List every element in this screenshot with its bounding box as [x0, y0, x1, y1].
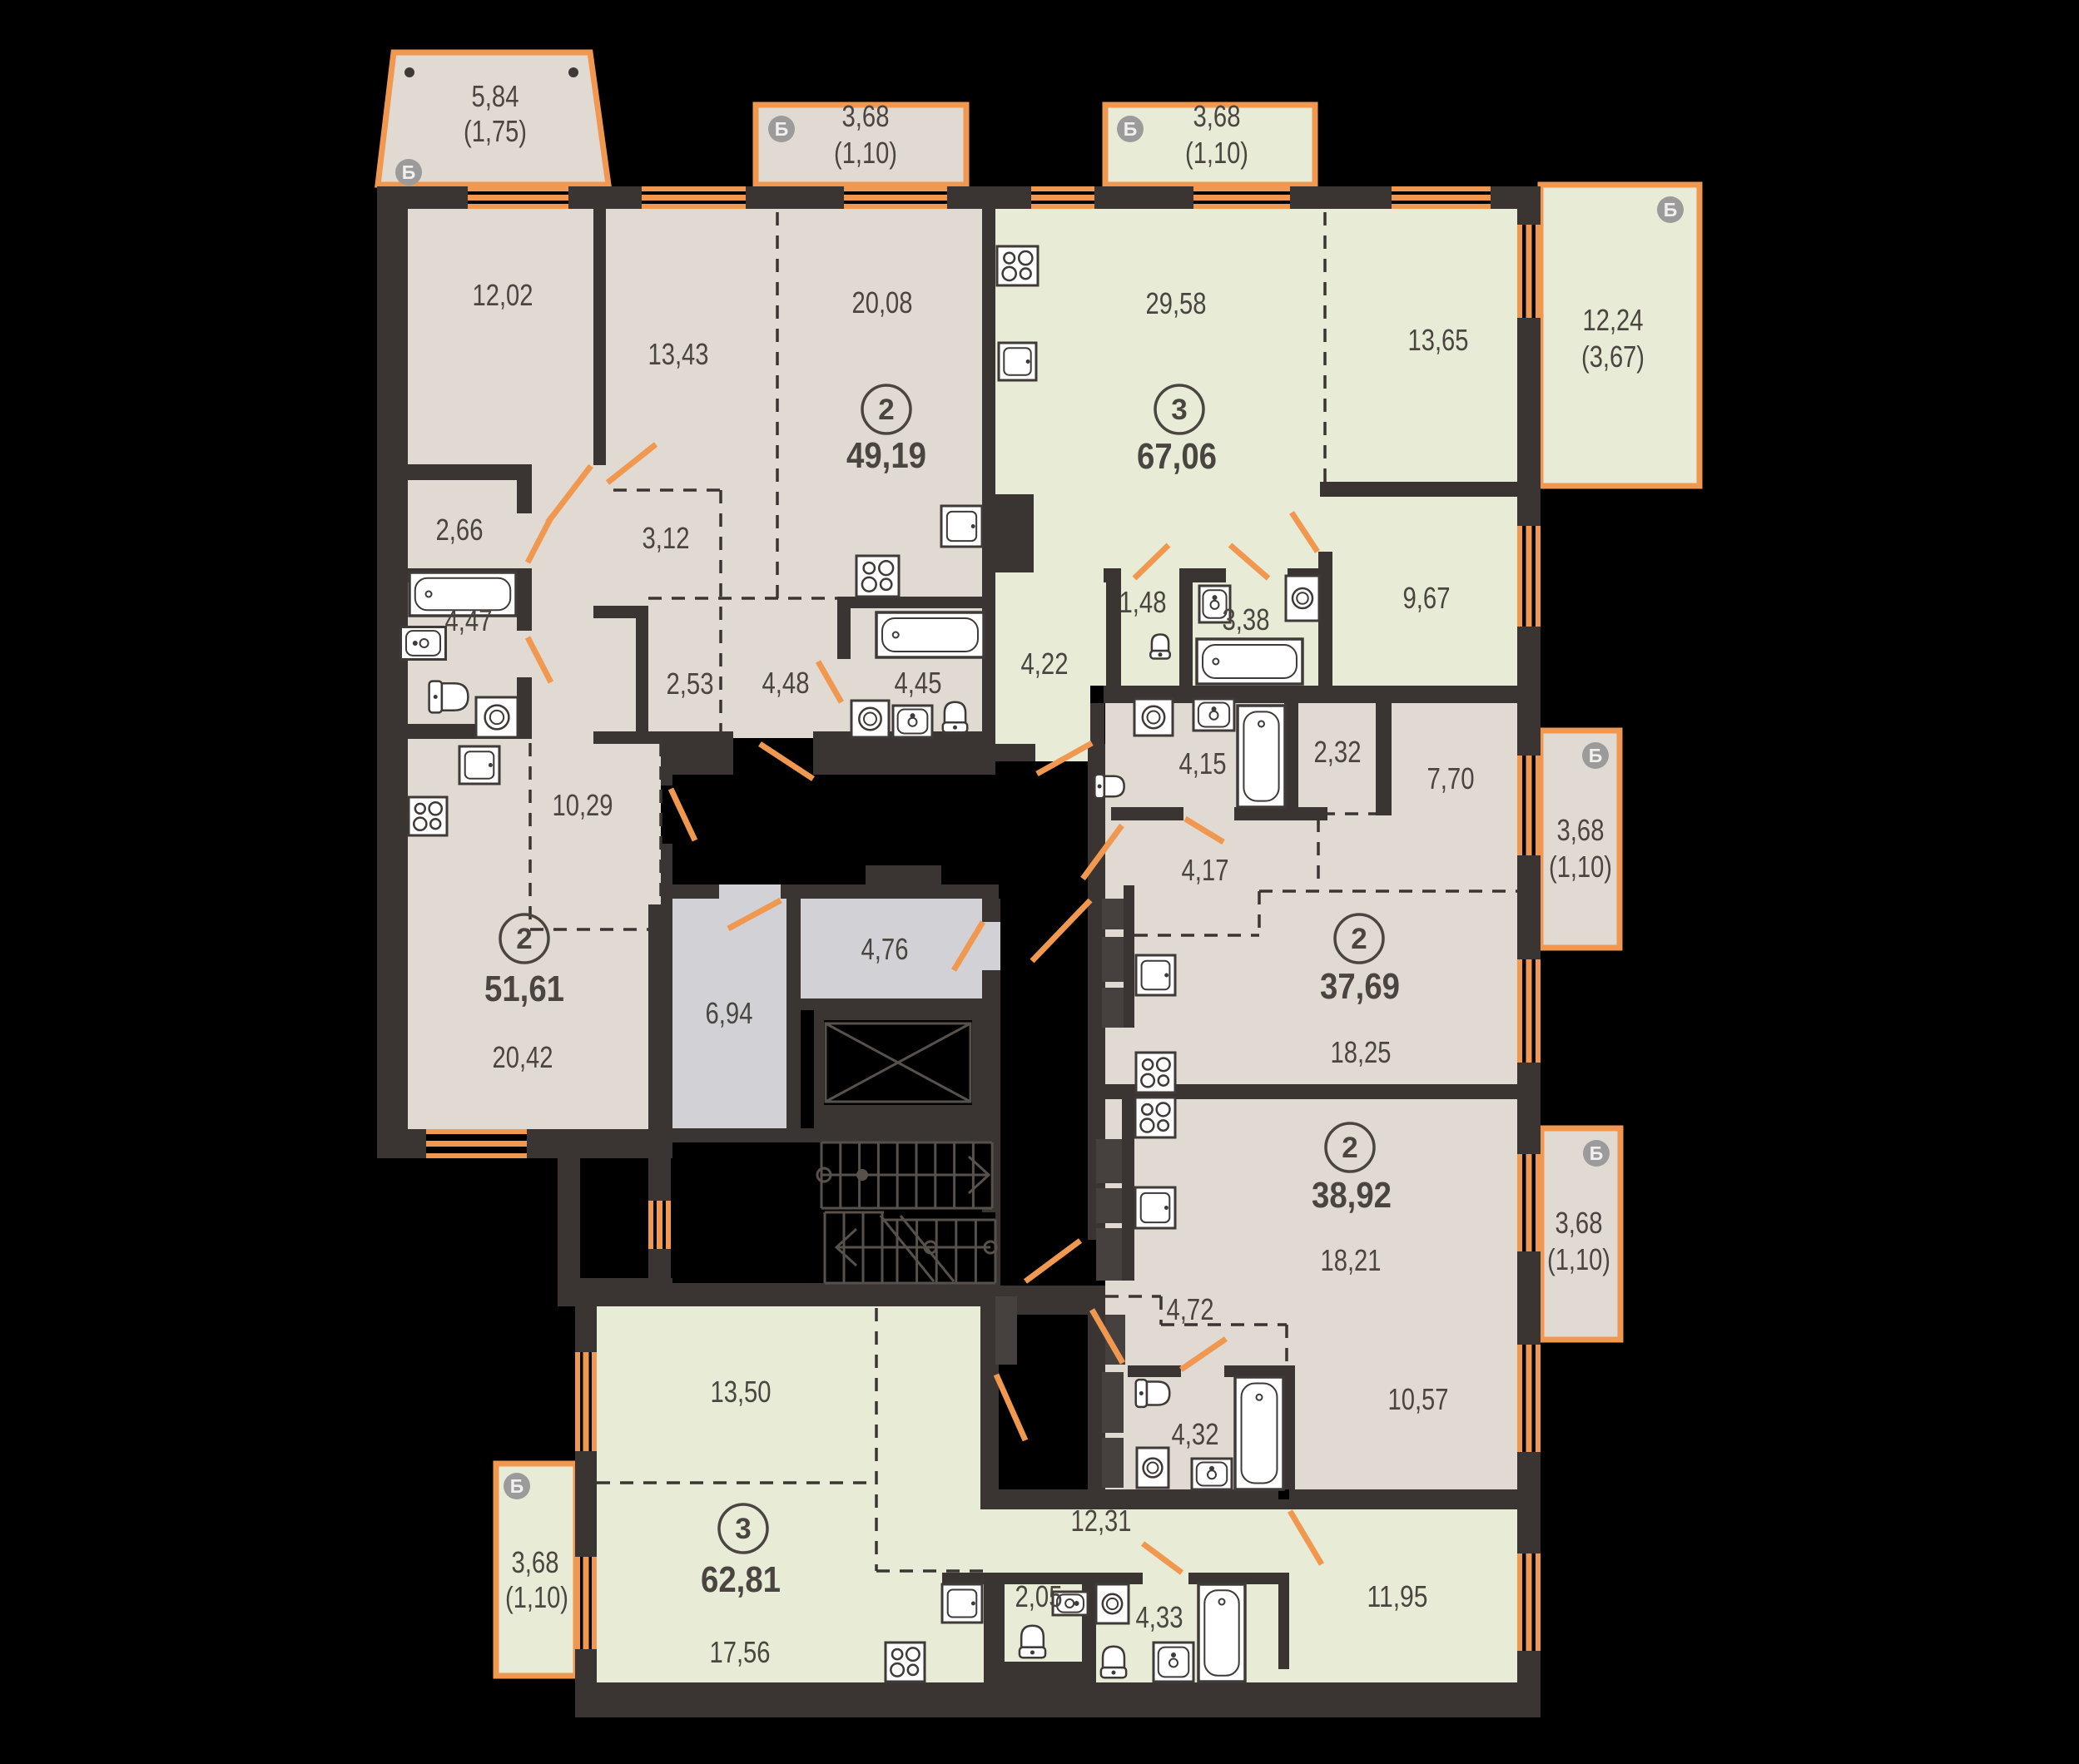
svg-text:13,65: 13,65: [1408, 323, 1469, 357]
svg-text:5,84: 5,84: [472, 79, 519, 113]
svg-text:9,67: 9,67: [1403, 581, 1451, 615]
svg-text:3,38: 3,38: [1223, 602, 1270, 637]
svg-text:7,70: 7,70: [1427, 761, 1475, 795]
svg-text:3,12: 3,12: [643, 521, 690, 555]
svg-text:(1,10): (1,10): [1185, 136, 1248, 170]
svg-text:2: 2: [516, 923, 532, 955]
svg-text:4,15: 4,15: [1179, 746, 1227, 780]
svg-text:38,92: 38,92: [1312, 1175, 1392, 1216]
svg-text:4,48: 4,48: [762, 666, 810, 700]
svg-text:(1,10): (1,10): [1547, 1242, 1610, 1276]
svg-text:1,48: 1,48: [1119, 585, 1167, 619]
svg-text:4,32: 4,32: [1172, 1417, 1219, 1451]
svg-text:Б: Б: [1589, 745, 1603, 766]
svg-text:12,24: 12,24: [1583, 303, 1644, 337]
svg-text:2,66: 2,66: [436, 513, 484, 547]
svg-text:Б: Б: [510, 1475, 524, 1497]
svg-text:4,17: 4,17: [1182, 853, 1229, 887]
svg-text:(3,67): (3,67): [1581, 339, 1645, 374]
svg-text:12,31: 12,31: [1071, 1504, 1132, 1538]
svg-text:17,56: 17,56: [710, 1635, 771, 1669]
svg-text:4,72: 4,72: [1167, 1292, 1214, 1326]
svg-text:37,69: 37,69: [1320, 966, 1400, 1007]
svg-text:12,02: 12,02: [473, 278, 533, 312]
svg-text:4,47: 4,47: [445, 603, 493, 637]
svg-text:2,53: 2,53: [667, 666, 714, 701]
svg-text:(1,75): (1,75): [464, 114, 527, 148]
svg-text:10,29: 10,29: [553, 788, 613, 822]
svg-text:2: 2: [1342, 1132, 1357, 1164]
svg-text:3,68: 3,68: [512, 1545, 559, 1579]
svg-text:4,45: 4,45: [895, 666, 942, 700]
svg-text:3: 3: [1171, 394, 1187, 426]
svg-text:13,43: 13,43: [648, 337, 709, 371]
svg-text:2: 2: [878, 394, 894, 426]
svg-text:6,94: 6,94: [706, 996, 753, 1030]
svg-text:62,81: 62,81: [701, 1559, 781, 1600]
svg-text:20,42: 20,42: [493, 1040, 553, 1074]
svg-text:(1,10): (1,10): [834, 136, 897, 170]
svg-text:4,76: 4,76: [861, 932, 909, 966]
svg-text:3,68: 3,68: [842, 99, 890, 133]
svg-text:Б: Б: [402, 161, 416, 183]
svg-text:3,68: 3,68: [1193, 99, 1241, 133]
svg-text:(1,10): (1,10): [505, 1580, 568, 1614]
svg-text:Б: Б: [1664, 199, 1678, 220]
svg-text:4,22: 4,22: [1021, 647, 1069, 681]
svg-text:(1,10): (1,10): [1549, 850, 1612, 884]
svg-text:49,19: 49,19: [846, 435, 926, 476]
svg-text:3: 3: [735, 1513, 751, 1545]
svg-text:Б: Б: [775, 118, 789, 140]
svg-text:11,95: 11,95: [1367, 1579, 1428, 1613]
svg-text:18,25: 18,25: [1331, 1035, 1392, 1069]
svg-text:2,32: 2,32: [1314, 735, 1362, 769]
svg-text:29,58: 29,58: [1146, 286, 1207, 320]
svg-text:2,05: 2,05: [1015, 1579, 1063, 1613]
svg-text:13,50: 13,50: [711, 1375, 772, 1409]
svg-text:10,57: 10,57: [1388, 1382, 1449, 1416]
svg-text:Б: Б: [1124, 118, 1138, 140]
svg-text:Б: Б: [1590, 1142, 1604, 1164]
svg-text:3,68: 3,68: [1556, 1206, 1603, 1240]
svg-text:4,33: 4,33: [1136, 1600, 1183, 1634]
svg-text:20,08: 20,08: [852, 285, 913, 320]
svg-text:67,06: 67,06: [1137, 436, 1217, 477]
svg-text:2: 2: [1351, 923, 1367, 955]
svg-text:18,21: 18,21: [1321, 1243, 1382, 1277]
svg-text:51,61: 51,61: [484, 969, 564, 1009]
svg-text:3,68: 3,68: [1557, 813, 1605, 847]
